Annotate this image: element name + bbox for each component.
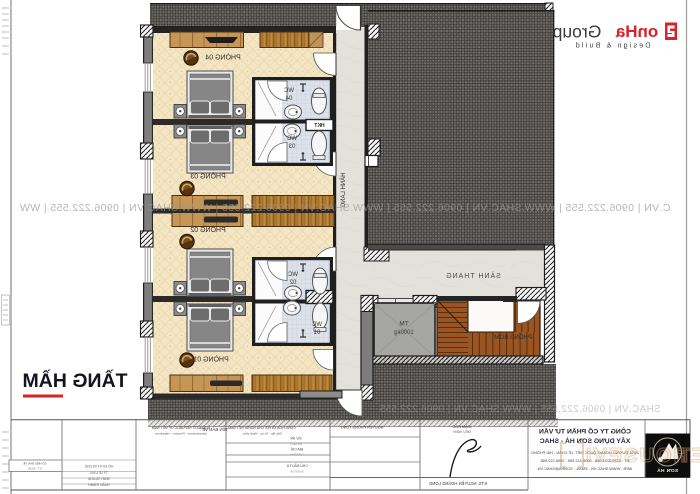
svg-text:Group: Group	[553, 22, 602, 42]
svg-text:CHỦ ĐẦU TƯ: CHỦ ĐẦU TƯ	[286, 463, 307, 468]
svg-text:PHÒNG 03: PHÒNG 03	[190, 171, 226, 180]
svg-text:PROJECT: PROJECT	[290, 442, 303, 446]
svg-text:KTS. NGUYỄN HOÀNG LONG: KTS. NGUYỄN HOÀNG LONG	[429, 481, 487, 486]
svg-text:Độc lập - Tự do - Hạnh phúc: Độc lập - Tự do - Hạnh phúc	[242, 432, 282, 436]
svg-text:SƠN HÀ: SƠN HÀ	[657, 467, 679, 474]
svg-text:03: 03	[288, 144, 295, 150]
svg-text:HKT: HKT	[314, 123, 324, 129]
svg-text:PHÒNG BƠM: PHÒNG BƠM	[494, 334, 532, 341]
svg-text:XÂY DỰNG SƠN HÀ - SHAC: XÂY DỰNG SƠN HÀ - SHAC	[540, 436, 631, 445]
svg-text:GIÁM ĐỐC: GIÁM ĐỐC	[452, 424, 471, 429]
svg-text:WC: WC	[287, 272, 298, 278]
svg-text:LOCATION: LOCATION	[290, 453, 303, 457]
svg-text:PHÒNG 02: PHÒNG 02	[190, 225, 226, 234]
svg-text:PHÒNG 04: PHÒNG 04	[205, 52, 241, 61]
svg-text:TẦNG HẦM: TẦNG HẦM	[22, 369, 127, 392]
svg-text:DỰ ÁN: DỰ ÁN	[290, 437, 302, 441]
svg-text:NGUYỄN PHÙNG TÙNG: NGUYỄN PHÙNG TÙNG	[341, 424, 384, 429]
svg-text:WC: WC	[286, 136, 297, 142]
svg-text:ĐIỀU HÀNH: ĐIỀU HÀNH	[453, 429, 471, 434]
svg-text:ET: ET	[675, 445, 700, 467]
svg-text:KT - 05/16: KT - 05/16	[28, 466, 42, 470]
svg-text:WC: WC	[283, 88, 294, 94]
svg-text:Design & Build: Design & Build	[574, 42, 651, 49]
svg-text:SẢNH THANG: SẢNH THANG	[445, 271, 501, 280]
svg-text:SOCIALIST REPUBLIC OF VIET NAM: SOCIALIST REPUBLIC OF VIET NAM	[152, 426, 210, 430]
svg-text:HOUSEVI: HOUSEVI	[584, 445, 688, 467]
svg-text:HOÀN THÀNH: HOÀN THÀNH	[88, 483, 110, 487]
svg-text:01: 01	[313, 330, 320, 336]
svg-text:SỐ HIỆU BẢN VẼ: SỐ HIỆU BẢN VẼ	[23, 461, 46, 466]
svg-text:TỶ LỆ 1/100: TỶ LỆ 1/100	[90, 470, 108, 475]
svg-text:INVESTOR: INVESTOR	[290, 469, 303, 473]
svg-text:PHÒNG 01: PHÒNG 01	[193, 354, 229, 363]
svg-text:1000kg: 1000kg	[394, 330, 414, 336]
svg-text:onHa: onHa	[615, 22, 658, 41]
svg-text:CỘNG HÒA XÃ HỘI CHỦ NGHĨA VIỆT: CỘNG HÒA XÃ HỘI CHỦ NGHĨA VIỆT NAM	[228, 425, 296, 430]
svg-text:TM: TM	[399, 320, 408, 327]
svg-text:C.VN | 0906.222.555 | WWW.: C.VN | 0906.222.555 | WWW.SHAC.VN | 0906…	[20, 202, 671, 214]
svg-text:Independence - Freedom - Happi: Independence - Freedom - Happiness	[154, 432, 207, 436]
svg-text:02: 02	[289, 280, 296, 286]
svg-text:HỒ SƠ KT 05-2016: HỒ SƠ KT 05-2016	[85, 464, 113, 469]
svg-text:WC: WC	[311, 322, 322, 328]
svg-text:ĐỊA CHỈ: ĐỊA CHỈ	[291, 447, 303, 452]
svg-text:04: 04	[285, 96, 292, 102]
svg-text:SHAC.VN | 0906.222.555 | W: SHAC.VN | 0906.222.555 | WWW.SHAC.VN | 0…	[379, 404, 660, 415]
svg-text:NGÀY 05-2016: NGÀY 05-2016	[88, 477, 110, 481]
